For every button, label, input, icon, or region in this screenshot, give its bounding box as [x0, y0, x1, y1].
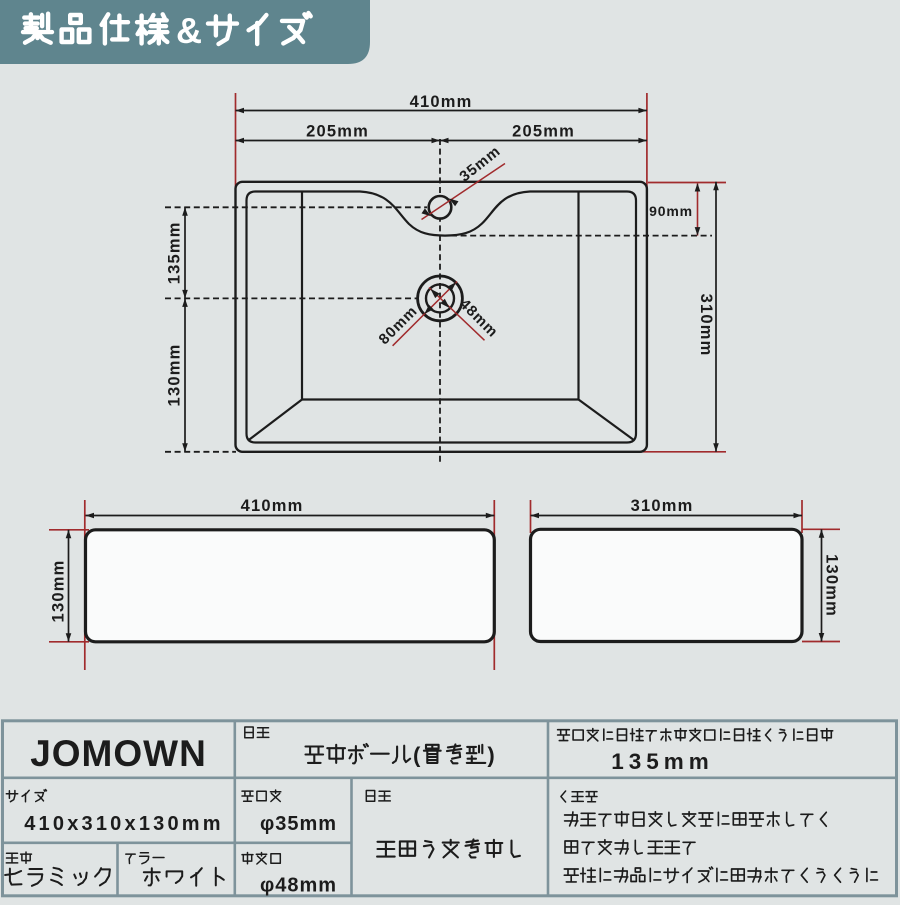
svg-text:): )	[487, 742, 494, 767]
svg-text:130mm: 130mm	[823, 554, 841, 617]
svg-text:410mm: 410mm	[241, 497, 304, 515]
svg-text:130mm: 130mm	[166, 344, 184, 407]
svg-text:φ35mm: φ35mm	[260, 813, 337, 835]
svg-text:90mm: 90mm	[649, 203, 693, 219]
svg-text:135mm: 135mm	[166, 221, 184, 284]
svg-text:φ48mm: φ48mm	[260, 875, 337, 897]
svg-text:310mm: 310mm	[697, 294, 715, 357]
svg-text:205mm: 205mm	[512, 123, 575, 141]
svg-text:410mm: 410mm	[410, 93, 473, 111]
svg-text:310mm: 310mm	[631, 497, 694, 515]
svg-text:(: (	[413, 742, 421, 767]
svg-text:135mm: 135mm	[611, 749, 714, 774]
svg-text:&: &	[176, 10, 202, 51]
svg-text:JOMOWN: JOMOWN	[30, 733, 207, 774]
svg-text:205mm: 205mm	[306, 123, 369, 141]
svg-text:130mm: 130mm	[50, 560, 68, 623]
svg-text:410x310x130mm: 410x310x130mm	[24, 813, 224, 835]
